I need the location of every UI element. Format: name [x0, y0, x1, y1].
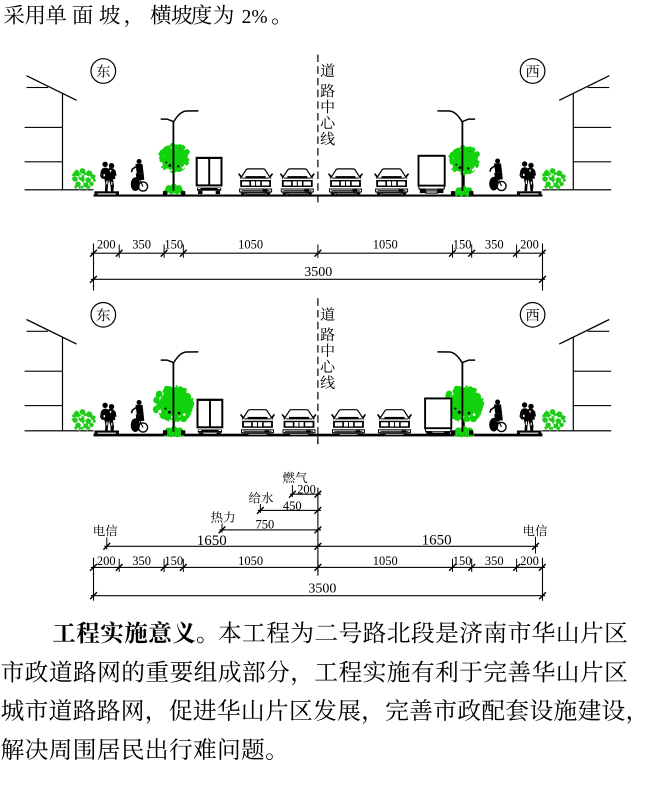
svg-text:150: 150: [164, 554, 183, 568]
svg-text:150: 150: [453, 554, 472, 568]
svg-text:1050: 1050: [238, 554, 263, 568]
svg-text:200: 200: [297, 482, 316, 496]
svg-text:1650: 1650: [422, 532, 452, 548]
svg-text:350: 350: [132, 554, 151, 568]
svg-text:200: 200: [97, 238, 116, 252]
svg-text:350: 350: [485, 554, 504, 568]
svg-text:1050: 1050: [373, 238, 398, 252]
svg-text:1050: 1050: [373, 554, 398, 568]
svg-text:750: 750: [256, 517, 275, 531]
svg-text:450: 450: [283, 499, 302, 513]
svg-text:1650: 1650: [197, 533, 227, 549]
svg-text:200: 200: [97, 554, 116, 568]
svg-text:2%: 2%: [242, 7, 268, 28]
svg-text:150: 150: [453, 238, 472, 252]
svg-text:350: 350: [485, 238, 504, 252]
svg-text:200: 200: [520, 554, 539, 568]
svg-text:350: 350: [132, 238, 151, 252]
svg-text:3500: 3500: [308, 581, 336, 596]
svg-text:1050: 1050: [238, 238, 263, 252]
svg-text:3500: 3500: [304, 265, 332, 280]
svg-text:200: 200: [520, 238, 539, 252]
svg-text:150: 150: [164, 238, 183, 252]
